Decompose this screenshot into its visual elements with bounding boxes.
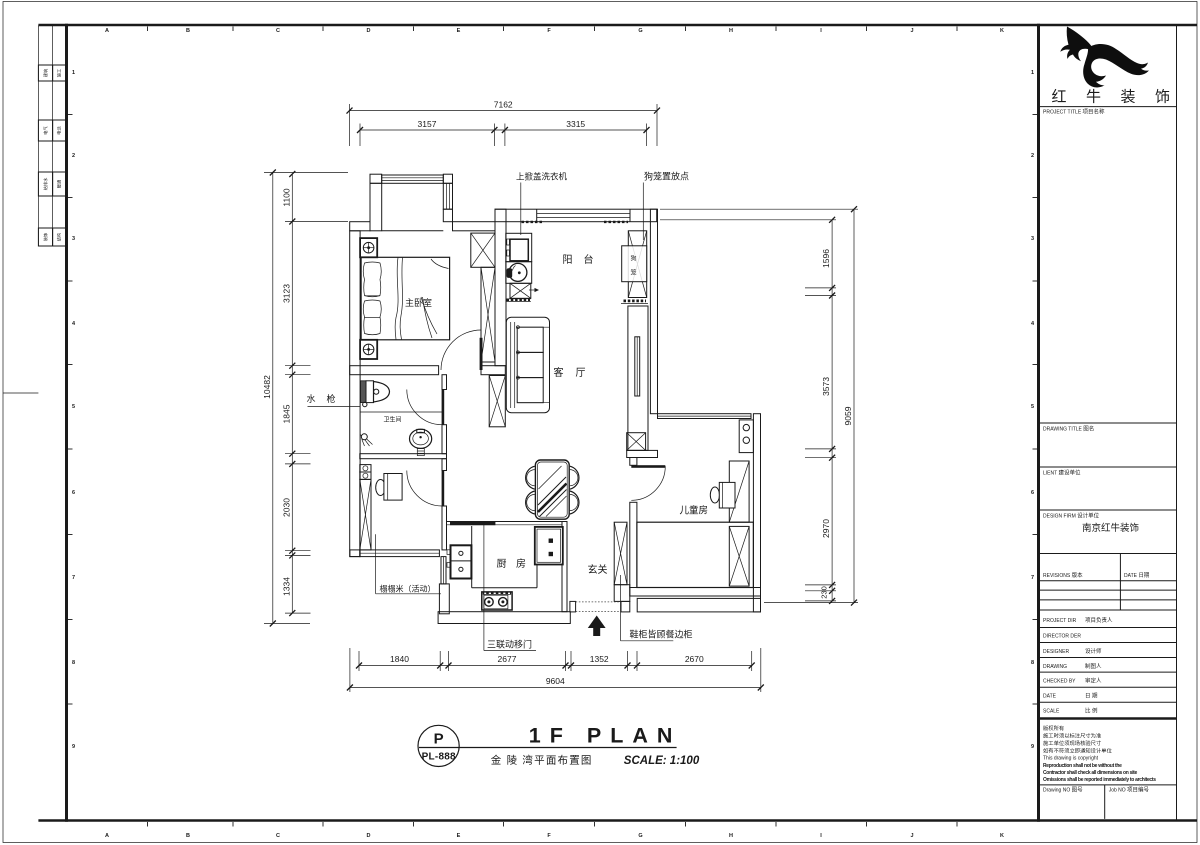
svg-text:10482: 10482 [262, 375, 272, 399]
svg-text:H: H [729, 833, 733, 839]
svg-text:厅: 厅 [576, 368, 586, 379]
svg-text:REVISIONS 版本: REVISIONS 版本 [1043, 571, 1083, 579]
svg-text:K: K [1000, 28, 1004, 34]
svg-text:6: 6 [1031, 490, 1034, 496]
svg-text:1100: 1100 [281, 188, 291, 207]
svg-text:Job NO 项目编号: Job NO 项目编号 [1109, 786, 1150, 794]
svg-text:CHECKED BY: CHECKED BY [1043, 679, 1076, 685]
svg-text:5: 5 [1031, 404, 1034, 410]
svg-text:台: 台 [584, 253, 594, 266]
svg-text:卫生间: 卫生间 [383, 416, 401, 424]
svg-text:A: A [105, 833, 109, 839]
svg-text:鞋柜皆顾餐边柜: 鞋柜皆顾餐边柜 [630, 629, 693, 640]
svg-text:A: A [105, 28, 109, 34]
svg-text:狗: 狗 [631, 255, 637, 263]
svg-text:SCALE: SCALE [1043, 709, 1060, 715]
svg-text:1F PLAN: 1F PLAN [529, 724, 682, 748]
svg-text:比 例: 比 例 [1085, 707, 1098, 715]
svg-text:1: 1 [72, 70, 75, 76]
svg-text:给排水: 给排水 [42, 177, 49, 190]
svg-text:建筑: 建筑 [42, 68, 49, 77]
svg-text:设计师: 设计师 [1085, 647, 1102, 655]
svg-text:结构: 结构 [56, 233, 63, 241]
svg-text:Contractor shall check all dim: Contractor shall check all dimensions on… [1043, 770, 1138, 776]
svg-text:2030: 2030 [281, 498, 291, 517]
svg-text:儿童房: 儿童房 [680, 505, 709, 517]
svg-text:客: 客 [554, 366, 564, 379]
svg-text:2677: 2677 [498, 654, 517, 664]
svg-text:枪: 枪 [327, 393, 336, 404]
svg-text:D: D [367, 28, 371, 34]
svg-text:DESIGN FIRM 设计单位: DESIGN FIRM 设计单位 [1043, 512, 1100, 520]
svg-text:审定人: 审定人 [1085, 677, 1102, 685]
svg-text:Drawing NO 图号: Drawing NO 图号 [1043, 786, 1083, 794]
svg-text:版权所有: 版权所有 [1043, 724, 1064, 732]
svg-text:阳: 阳 [563, 254, 573, 266]
svg-text:J: J [910, 28, 913, 34]
svg-text:7162: 7162 [494, 100, 513, 110]
svg-text:3315: 3315 [566, 119, 585, 129]
svg-text:E: E [457, 833, 461, 839]
svg-text:施工单位须现场核验尺寸: 施工单位须现场核验尺寸 [1043, 739, 1102, 747]
svg-text:DATE: DATE [1043, 694, 1057, 700]
svg-text:制图人: 制图人 [1085, 662, 1102, 670]
svg-text:LIENT 建设单位: LIENT 建设单位 [1043, 469, 1081, 477]
svg-text:装饰: 装饰 [42, 233, 49, 241]
svg-text:2670: 2670 [685, 654, 704, 664]
svg-text:9604: 9604 [546, 676, 565, 686]
svg-text:PROJECT TITLE 项目名称: PROJECT TITLE 项目名称 [1043, 108, 1105, 116]
svg-text:红牛装饰: 红牛装饰 [1052, 89, 1190, 106]
svg-text:3: 3 [1031, 236, 1034, 242]
svg-text:电话: 电话 [56, 126, 63, 134]
svg-text:3157: 3157 [418, 119, 437, 129]
svg-text:1845: 1845 [281, 404, 291, 423]
svg-text:2: 2 [1031, 153, 1034, 159]
svg-text:1596: 1596 [821, 249, 831, 268]
svg-text:9: 9 [1031, 744, 1034, 750]
svg-text:230: 230 [820, 586, 829, 599]
svg-text:K: K [1000, 833, 1004, 839]
svg-text:PL-888: PL-888 [422, 752, 456, 763]
svg-text:榻榻米（活动）: 榻榻米（活动） [380, 584, 436, 594]
svg-text:DRAWING TITLE 图名: DRAWING TITLE 图名 [1043, 425, 1094, 433]
svg-text:水: 水 [307, 393, 316, 404]
svg-text:金 陵 湾平面布置图: 金 陵 湾平面布置图 [491, 754, 593, 767]
svg-text:8: 8 [72, 660, 75, 666]
svg-text:3123: 3123 [281, 284, 291, 303]
svg-text:7: 7 [1031, 575, 1034, 581]
svg-text:Omissions shall be reported im: Omissions shall be reported immediately … [1043, 777, 1156, 783]
svg-text:G: G [638, 833, 642, 839]
svg-text:主卧室: 主卧室 [405, 297, 432, 308]
svg-text:C: C [276, 28, 280, 34]
svg-text:施工时须以标注尺寸为准: 施工时须以标注尺寸为准 [1043, 732, 1102, 740]
svg-text:B: B [186, 28, 190, 34]
svg-text:1334: 1334 [281, 577, 291, 596]
svg-text:H: H [729, 28, 733, 34]
svg-text:DIRECTOR DER: DIRECTOR DER [1043, 634, 1081, 640]
svg-text:暖通: 暖通 [56, 179, 63, 188]
svg-text:DRAWING: DRAWING [1043, 664, 1067, 670]
svg-text:1352: 1352 [590, 654, 609, 664]
svg-text:电气: 电气 [42, 126, 48, 135]
svg-text:B: B [186, 833, 190, 839]
svg-text:笼: 笼 [631, 269, 637, 277]
svg-text:8: 8 [1031, 660, 1034, 666]
svg-text:E: E [457, 28, 461, 34]
svg-text:日 期: 日 期 [1085, 693, 1098, 700]
svg-text:6: 6 [72, 490, 75, 496]
svg-text:2970: 2970 [821, 519, 831, 538]
svg-text:上掀盖洗衣机: 上掀盖洗衣机 [516, 172, 568, 182]
svg-text:P: P [434, 731, 444, 748]
svg-text:5: 5 [72, 404, 75, 410]
svg-text:DATE 日期: DATE 日期 [1124, 572, 1150, 579]
svg-text:1: 1 [1031, 70, 1034, 76]
svg-text:G: G [638, 28, 642, 34]
svg-text:2: 2 [72, 153, 75, 159]
svg-text:9: 9 [72, 744, 75, 750]
svg-text:3: 3 [72, 236, 75, 242]
svg-text:南京红牛装饰: 南京红牛装饰 [1082, 522, 1139, 534]
svg-text:房: 房 [516, 557, 526, 570]
svg-text:三联动移门: 三联动移门 [487, 639, 532, 650]
svg-text:C: C [276, 833, 280, 839]
svg-text:DESIGNER: DESIGNER [1043, 649, 1070, 655]
svg-text:厨: 厨 [497, 558, 507, 570]
svg-text:D: D [367, 833, 371, 839]
svg-text:J: J [910, 833, 913, 839]
svg-text:玄关: 玄关 [588, 563, 608, 576]
svg-text:狗笼置放点: 狗笼置放点 [644, 171, 689, 182]
svg-text:9059: 9059 [843, 406, 853, 425]
svg-text:PROJECT DIR: PROJECT DIR [1043, 618, 1077, 624]
svg-text:3573: 3573 [821, 377, 831, 396]
svg-text:施工: 施工 [56, 69, 63, 77]
svg-text:SCALE: 1:100: SCALE: 1:100 [624, 755, 700, 767]
svg-text:This drawing is copyright: This drawing is copyright [1043, 756, 1099, 762]
svg-text:如有不符须立即通知设计单位: 如有不符须立即通知设计单位 [1043, 747, 1113, 755]
svg-text:1840: 1840 [390, 654, 409, 664]
svg-text:7: 7 [72, 575, 75, 581]
svg-text:Reproduction shall not be with: Reproduction shall not be without the [1043, 763, 1122, 769]
svg-text:项目负责人: 项目负责人 [1085, 616, 1113, 624]
